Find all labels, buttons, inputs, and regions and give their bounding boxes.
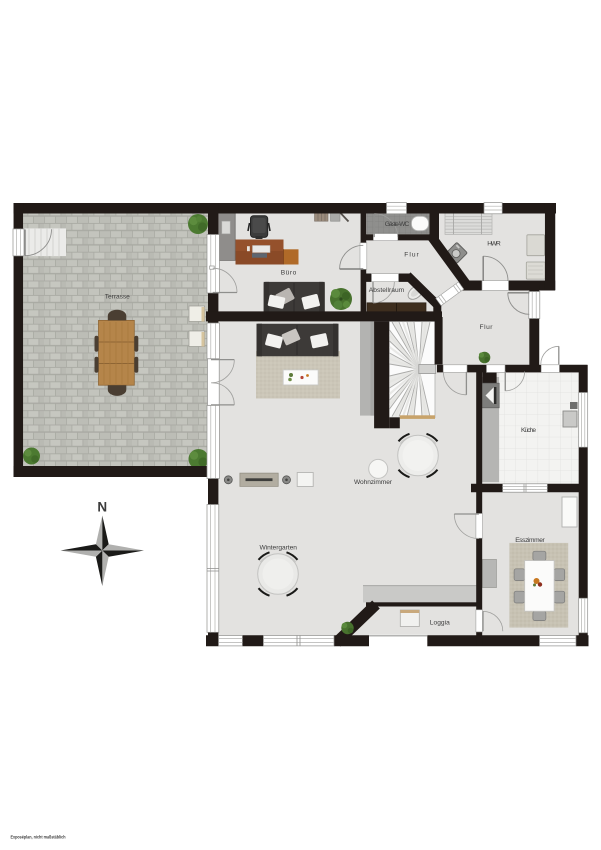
svg-text:Flur: Flur [480,324,494,331]
svg-text:Loggia: Loggia [430,619,450,626]
svg-text:Büro: Büro [281,270,297,277]
svg-text:Flur: Flur [404,252,419,259]
svg-text:Abstellraum: Abstellraum [369,287,405,294]
svg-text:Gäste-WC: Gäste-WC [385,221,410,228]
svg-text:Wohnzimmer: Wohnzimmer [354,479,393,486]
svg-text:HWR: HWR [487,241,501,248]
svg-text:N: N [97,500,107,515]
svg-text:Exposéplan, nicht maßstäblich: Exposéplan, nicht maßstäblich [11,835,66,841]
svg-text:Küche: Küche [521,427,536,434]
svg-text:Wintergarten: Wintergarten [259,544,297,551]
svg-text:Terrasse: Terrasse [105,294,130,301]
svg-text:Esszimmer: Esszimmer [515,537,545,544]
